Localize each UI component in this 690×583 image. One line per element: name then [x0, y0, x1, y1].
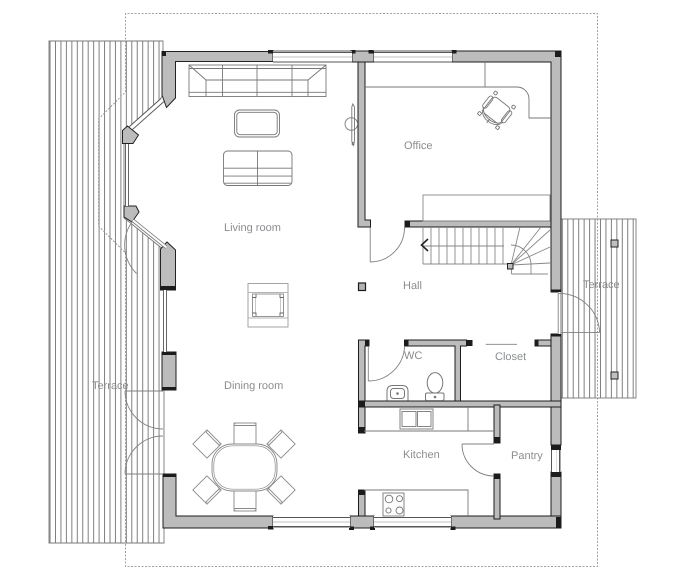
svg-text:Office: Office	[404, 140, 433, 152]
svg-text:Closet: Closet	[495, 351, 526, 363]
svg-text:Living room: Living room	[224, 222, 281, 234]
svg-text:Terrace: Terrace	[583, 279, 620, 291]
svg-text:Hall: Hall	[403, 280, 422, 292]
svg-text:Dining room: Dining room	[224, 380, 283, 392]
svg-text:Kitchen: Kitchen	[403, 449, 440, 461]
svg-text:Terrace: Terrace	[92, 380, 129, 392]
svg-text:WC: WC	[404, 350, 422, 362]
svg-text:Pantry: Pantry	[511, 450, 543, 462]
